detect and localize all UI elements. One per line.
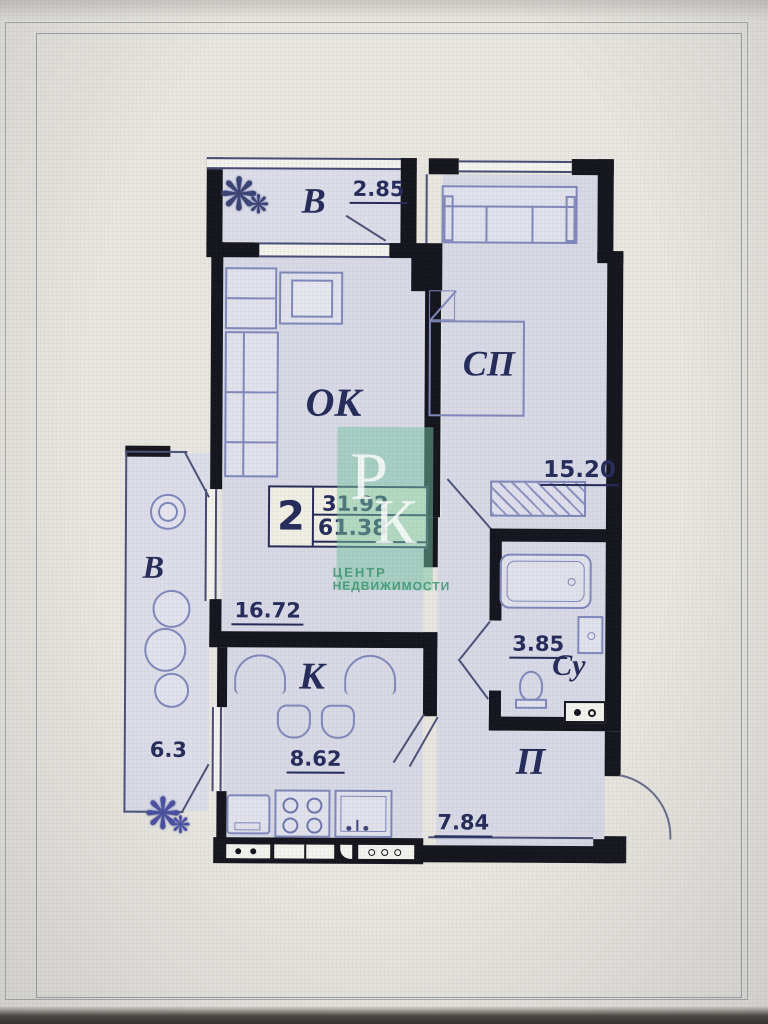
window-balcony-door	[259, 242, 389, 258]
floorplan-photo: ❋ ❋ ❋ ❋ В 2.85 СП 15.20 ОК 16.72 В 6.3 К…	[0, 0, 768, 1024]
toilet-bowl	[519, 671, 543, 701]
balcony-table-inner	[158, 502, 178, 522]
room-area-hallway: 7.84	[434, 811, 492, 837]
room-area-balcony-top: 2.85	[350, 178, 408, 204]
stamp-divider	[312, 488, 314, 546]
toilet-tank	[515, 699, 547, 709]
room-label-hallway: П	[516, 743, 546, 781]
wall-bedroom-right-lower	[606, 251, 624, 539]
watermark-line-1: ЦЕНТР	[333, 566, 387, 579]
window-bedroom	[459, 160, 572, 173]
kitchen-sink-unit	[334, 790, 392, 838]
photo-edge-bottom	[0, 1006, 768, 1024]
plant-icon: ❋	[248, 189, 270, 220]
tv	[291, 280, 333, 318]
window-kitchen-balcony	[212, 707, 222, 791]
kitchen-chair-2	[321, 705, 355, 739]
wall-living-left	[210, 242, 223, 489]
wall-hall-bottom	[422, 845, 610, 863]
wall-bathroom-top	[490, 529, 612, 543]
kitchen-stove	[274, 789, 330, 837]
balcony-chair-2	[144, 628, 186, 672]
wall-living-left-lower	[209, 599, 221, 647]
room-area-balcony-left: 6.3	[147, 739, 190, 763]
wall-living-kitchen	[209, 631, 437, 648]
room-area-bathroom: 3.85	[509, 633, 567, 659]
living-wardrobe	[224, 331, 279, 477]
room-label-bedroom: СП	[463, 345, 515, 381]
window-living-balcony	[205, 489, 218, 601]
room-area-kitchen: 8.62	[287, 747, 345, 773]
bathtub	[499, 554, 591, 609]
wall-bedroom-balcony-thin	[425, 174, 427, 244]
room-area-bedroom: 15.20	[540, 458, 619, 487]
photo-edge-top	[0, 0, 768, 20]
vent-box-plain	[274, 844, 334, 858]
wall-hall-right	[605, 731, 621, 776]
room-label-living: ОК	[305, 383, 361, 423]
living-cabinet	[225, 267, 277, 329]
room-label-balcony-top: В	[302, 183, 326, 219]
vent-box-dots	[226, 844, 270, 858]
balcony-chair-1	[152, 590, 190, 628]
wall-kitchen-hall-divider	[423, 632, 437, 716]
kitchen-cabinet	[226, 794, 270, 834]
room-area-living: 16.72	[231, 599, 304, 625]
wall-kitchen-left-lower	[216, 791, 226, 841]
plant-icon: ❋	[170, 811, 190, 840]
entry-door-arc	[618, 773, 690, 845]
wall-bedroom-top-left	[429, 158, 459, 174]
glazing-balcony-top	[125, 451, 187, 453]
wall-bedroom-right-upper	[597, 159, 614, 259]
washing-machine	[564, 701, 606, 723]
stamp-rooms-count: 2	[270, 493, 312, 539]
wall-kitchen-left-upper	[217, 647, 227, 707]
apartment-plan: ❋ ❋ ❋ ❋ В 2.85 СП 15.20 ОК 16.72 В 6.3 К…	[0, 0, 768, 1024]
kitchen-chair-1	[277, 704, 311, 738]
room-label-balcony-left: В	[143, 551, 165, 583]
watermark-letter-k: К	[374, 490, 417, 554]
bedroom-sofa	[441, 185, 577, 244]
vent-box-circles	[358, 845, 414, 859]
watermark-line-2: НЕДВИЖИМОСТИ	[333, 580, 451, 593]
balcony-chair-3	[154, 673, 189, 708]
room-label-kitchen: К	[299, 658, 325, 696]
wall-bathroom-right	[605, 529, 622, 731]
